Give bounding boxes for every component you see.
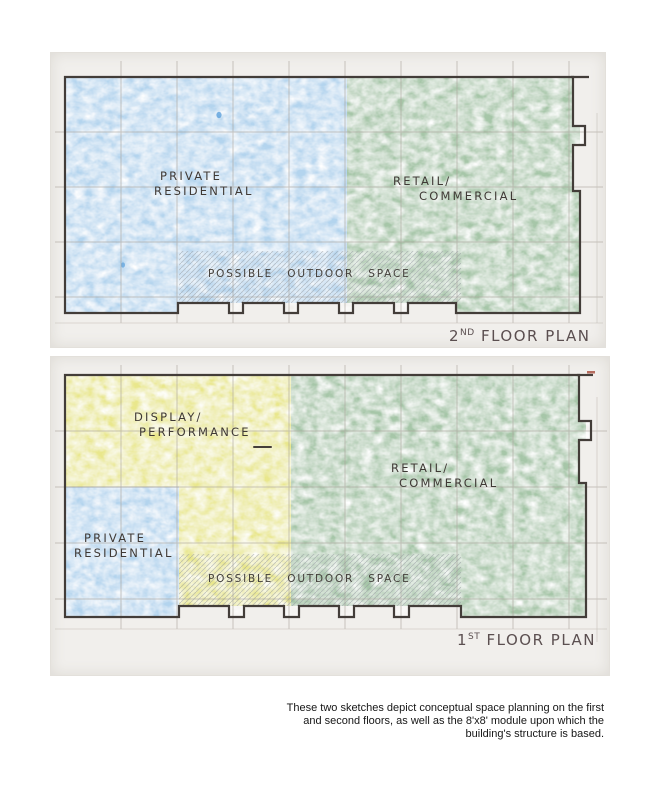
title-ordinal: ND [460, 328, 475, 338]
label-line: COMMERCIAL [419, 189, 518, 204]
title-number: 2 [449, 327, 460, 345]
retail-zone-fill-strip [461, 606, 586, 617]
caption-line: These two sketches depict conceptual spa… [224, 702, 604, 715]
label-retail-commercial: RETAIL/ COMMERCIAL [391, 461, 498, 491]
label-line: RETAIL/ [391, 461, 449, 475]
title-ordinal: ST [468, 632, 480, 642]
label-display-performance: DISPLAY/ PERFORMANCE [134, 410, 251, 440]
label-retail-commercial: RETAIL/ COMMERCIAL [393, 174, 518, 204]
red-pencil-tick [587, 371, 595, 374]
title-text: FLOOR PLAN [475, 327, 591, 345]
label-line: RESIDENTIAL [154, 184, 254, 199]
caption-line: and second floors, as well as the 8'x8' … [224, 715, 604, 728]
retail-zone-fill-strip [456, 303, 580, 313]
label-line: RESIDENTIAL [74, 546, 174, 561]
second-floor-plan-drawing [51, 53, 607, 349]
label-line: PRIVATE [154, 169, 222, 183]
label-line: DISPLAY/ [134, 410, 203, 424]
leader-line [253, 446, 272, 448]
label-line: PRIVATE [74, 531, 146, 545]
second-floor-sketch-paper: PRIVATE RESIDENTIAL RETAIL/ COMMERCIAL P… [50, 52, 606, 348]
caption-line: building's structure is based. [224, 728, 604, 741]
label-line: RETAIL/ [393, 174, 451, 188]
label-private-residential: PRIVATE RESIDENTIAL [74, 531, 174, 561]
title-number: 1 [457, 631, 468, 649]
label-private-residential: PRIVATE RESIDENTIAL [154, 169, 254, 199]
title-text: FLOOR PLAN [480, 631, 596, 649]
second-floor-plan-title: 2ND FLOOR PLAN [449, 327, 590, 345]
first-floor-sketch-paper: DISPLAY/ PERFORMANCE PRIVATE RESIDENTIAL… [50, 356, 610, 676]
label-possible-outdoor-space: POSSIBLE OUTDOOR SPACE [208, 267, 411, 282]
label-possible-outdoor-space: POSSIBLE OUTDOOR SPACE [208, 572, 411, 587]
first-floor-plan-drawing [51, 357, 611, 677]
caption: These two sketches depict conceptual spa… [224, 702, 604, 740]
label-line: COMMERCIAL [399, 476, 498, 491]
portfolio-page: PRIVATE RESIDENTIAL RETAIL/ COMMERCIAL P… [0, 0, 650, 800]
label-line: PERFORMANCE [139, 425, 251, 440]
first-floor-plan-title: 1ST FLOOR PLAN [457, 631, 596, 649]
